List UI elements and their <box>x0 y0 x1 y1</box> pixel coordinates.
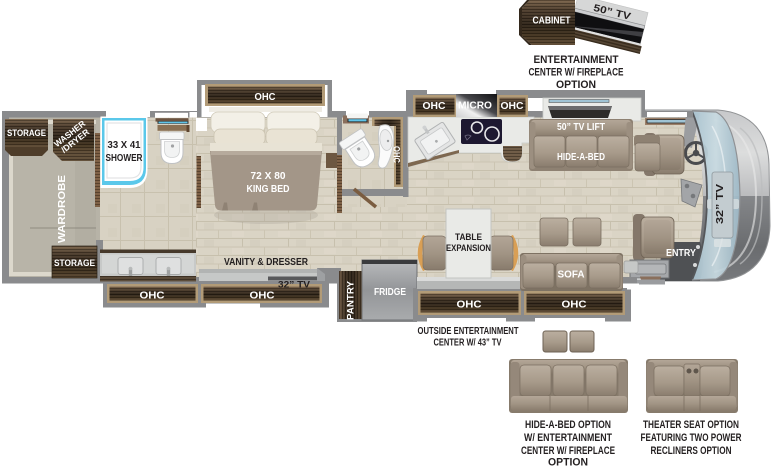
svg-text:MICRO: MICRO <box>458 101 492 112</box>
svg-text:RECLINERS OPTION: RECLINERS OPTION <box>651 445 732 457</box>
svg-text:32” TV: 32” TV <box>715 184 726 224</box>
svg-text:TABLE: TABLE <box>455 232 482 243</box>
svg-text:32” TV: 32” TV <box>278 280 311 291</box>
svg-text:HIDE-A-BED: HIDE-A-BED <box>557 152 605 163</box>
svg-text:OHC: OHC <box>140 291 165 302</box>
svg-text:FRIDGE: FRIDGE <box>374 286 406 298</box>
svg-text:CENTER W/ 43” TV: CENTER W/ 43” TV <box>434 338 502 349</box>
svg-text:33 X 41: 33 X 41 <box>108 140 141 151</box>
svg-text:WARDROBE: WARDROBE <box>56 175 68 243</box>
svg-text:VANITY & DRESSER: VANITY & DRESSER <box>224 256 308 268</box>
svg-text:HIDE-A-BED OPTION: HIDE-A-BED OPTION <box>525 419 611 431</box>
svg-text:STORAGE: STORAGE <box>54 258 95 268</box>
svg-text:OPTION: OPTION <box>556 79 596 91</box>
svg-text:EXPANSION: EXPANSION <box>446 243 491 254</box>
svg-text:50” TV LIFT: 50” TV LIFT <box>557 122 605 133</box>
svg-text:CABINET: CABINET <box>533 15 571 27</box>
svg-text:OPTION: OPTION <box>548 457 588 466</box>
svg-text:OHC: OHC <box>255 92 276 103</box>
svg-text:OHC: OHC <box>562 300 587 311</box>
svg-text:FEATURING TWO POWER: FEATURING TWO POWER <box>641 432 742 444</box>
svg-text:OUTSIDE ENTERTAINMENT: OUTSIDE ENTERTAINMENT <box>418 326 519 337</box>
svg-text:ENTRY: ENTRY <box>666 248 696 259</box>
svg-text:KING BED: KING BED <box>247 183 290 195</box>
svg-text:STORAGE: STORAGE <box>7 128 46 138</box>
svg-text:THEATER SEAT OPTION: THEATER SEAT OPTION <box>643 419 739 431</box>
svg-text:OHC: OHC <box>501 101 524 112</box>
svg-text:PANTRY: PANTRY <box>346 280 357 320</box>
svg-text:W/ ENTERTAINMENT: W/ ENTERTAINMENT <box>524 432 612 444</box>
svg-text:72 X 80: 72 X 80 <box>251 170 286 182</box>
svg-text:OHC: OHC <box>423 101 446 112</box>
svg-text:SOFA: SOFA <box>558 270 585 281</box>
svg-text:OHC: OHC <box>457 300 482 311</box>
svg-text:SHOWER: SHOWER <box>106 153 144 164</box>
svg-text:CENTER W/ FIREPLACE: CENTER W/ FIREPLACE <box>521 445 615 457</box>
svg-text:ENTERTAINMENT: ENTERTAINMENT <box>534 54 619 66</box>
svg-text:CENTER W/ FIREPLACE: CENTER W/ FIREPLACE <box>529 67 624 79</box>
svg-text:OHC: OHC <box>250 291 275 302</box>
